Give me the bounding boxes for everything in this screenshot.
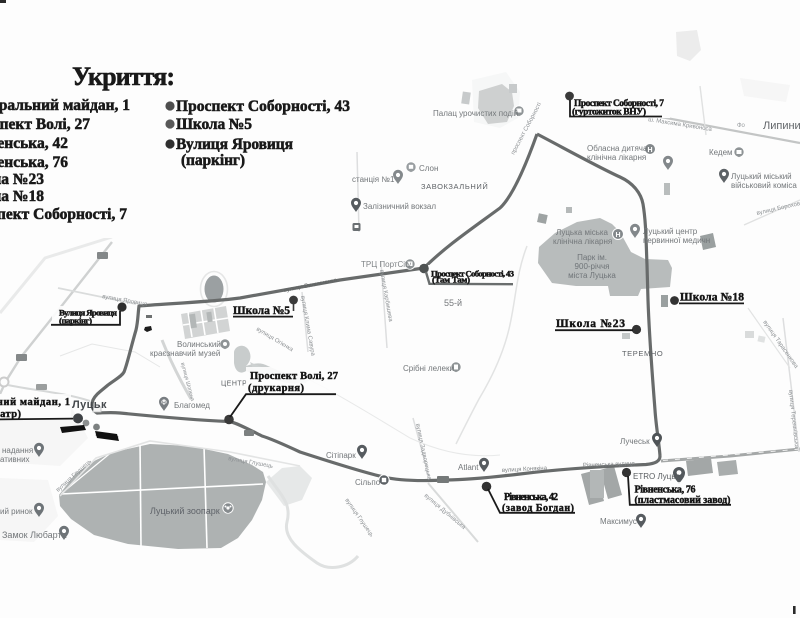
svg-text:Проспект Соборності, 43: Проспект Соборності, 43 xyxy=(176,98,350,115)
svg-text:ETRO Луцьк: ETRO Луцьк xyxy=(633,472,680,481)
svg-text:Театральний майдан, 1: Театральний майдан, 1 xyxy=(0,97,130,114)
svg-text:Луцький міський: Луцький міський xyxy=(731,172,792,181)
svg-text:станція №1: станція №1 xyxy=(352,175,395,184)
svg-text:Проспект Волі, 27: Проспект Волі, 27 xyxy=(250,371,338,382)
svg-text:Замок Любарта: Замок Любарта xyxy=(2,530,67,540)
svg-text:Залізничний вокзал: Залізничний вокзал xyxy=(363,202,436,211)
svg-text:(завод Богдан): (завод Богдан) xyxy=(502,503,574,514)
svg-text:Липини: Липини xyxy=(763,120,800,132)
svg-text:Укриття:: Укриття: xyxy=(72,62,175,91)
svg-text:Луцька міська: Луцька міська xyxy=(556,228,609,237)
svg-text:клінічна лікарня: клінічна лікарня xyxy=(587,153,646,162)
svg-text:первинної медичн: первинної медичн xyxy=(643,236,710,245)
svg-text:Школа №5: Школа №5 xyxy=(233,305,290,317)
svg-text:Слон: Слон xyxy=(419,164,438,173)
svg-text:міста Луцька: міста Луцька xyxy=(568,271,616,280)
svg-text:Луцьк: Луцьк xyxy=(72,399,107,411)
svg-text:Рівненська, 42: Рівненська, 42 xyxy=(504,492,558,503)
svg-text:Школа №23: Школа №23 xyxy=(0,171,44,188)
svg-text:Благомед: Благомед xyxy=(174,401,210,410)
svg-text:Рівненська, 42: Рівненська, 42 xyxy=(0,135,68,152)
svg-text:Парк ім.: Парк ім. xyxy=(577,253,607,262)
svg-text:Фо: Фо xyxy=(737,123,746,129)
svg-text:Театральний майдан, 1: Театральний майдан, 1 xyxy=(0,397,70,408)
svg-text:Школа №18: Школа №18 xyxy=(0,188,44,205)
svg-text:ЗАВОКЗАЛЬНИЙ: ЗАВОКЗАЛЬНИЙ xyxy=(421,182,488,191)
svg-text:Волинський: Волинський xyxy=(177,340,221,349)
svg-text:ТЕРЕМНО: ТЕРЕМНО xyxy=(622,349,663,358)
svg-text:Луцький зоопарк: Луцький зоопарк xyxy=(150,506,220,516)
svg-text:(друкарня): (друкарня) xyxy=(248,383,305,394)
svg-text:Школа №23: Школа №23 xyxy=(556,318,625,330)
svg-text:(гуртожиток ВНУ): (гуртожиток ВНУ) xyxy=(572,107,646,118)
svg-text:Максимус: Максимус xyxy=(600,517,637,526)
svg-text:Вулиця Яровиця: Вулиця Яровиця xyxy=(176,136,293,153)
svg-text:H: H xyxy=(162,400,166,406)
svg-text:Atlant: Atlant xyxy=(458,463,479,472)
svg-text:Сітіпарк: Сітіпарк xyxy=(326,451,356,460)
svg-text:Палац урочистих подій: Палац урочистих подій xyxy=(433,109,518,118)
svg-text:900-річчя: 900-річчя xyxy=(575,262,610,271)
svg-text:Рівненська, 76: Рівненська, 76 xyxy=(0,154,68,171)
svg-text:Школа №18: Школа №18 xyxy=(680,292,744,304)
svg-text:55-й: 55-й xyxy=(444,298,462,308)
svg-text:Проспект Соборності, 7: Проспект Соборності, 7 xyxy=(0,206,127,223)
svg-text:Кедем: Кедем xyxy=(709,148,733,157)
svg-text:надання: надання xyxy=(2,446,33,455)
svg-text:Срібні лелеки: Срібні лелеки xyxy=(403,364,454,373)
svg-text:Проспект Волі, 27: Проспект Волі, 27 xyxy=(0,116,90,133)
svg-text:військовий коміса: військовий коміса xyxy=(731,181,797,190)
svg-text:краєзнавчий музей: краєзнавчий музей xyxy=(150,349,220,358)
svg-text:ативних: ативних xyxy=(0,455,30,464)
svg-text:Обласна дитяча: Обласна дитяча xyxy=(587,144,648,153)
svg-text:Сільпо: Сільпо xyxy=(355,478,381,487)
svg-text:Луцький центр: Луцький центр xyxy=(643,227,698,236)
svg-text:ий ринок: ий ринок xyxy=(0,507,33,516)
svg-text:(Там Там): (Там Там) xyxy=(432,275,470,285)
svg-text:Школа №5: Школа №5 xyxy=(176,116,252,133)
svg-text:H: H xyxy=(647,147,652,154)
svg-text:клінічна лікарня: клінічна лікарня xyxy=(553,237,612,246)
svg-text:H: H xyxy=(615,232,620,239)
svg-text:(пластмасовий завод): (пластмасовий завод) xyxy=(635,495,731,506)
svg-text:ТРЦ ПортCity: ТРЦ ПортCity xyxy=(361,260,411,269)
svg-text:(паркінг): (паркінг) xyxy=(181,152,245,169)
svg-text:Лучеськ: Лучеськ xyxy=(620,437,650,446)
svg-text:ЦЕНТР: ЦЕНТР xyxy=(221,381,247,388)
